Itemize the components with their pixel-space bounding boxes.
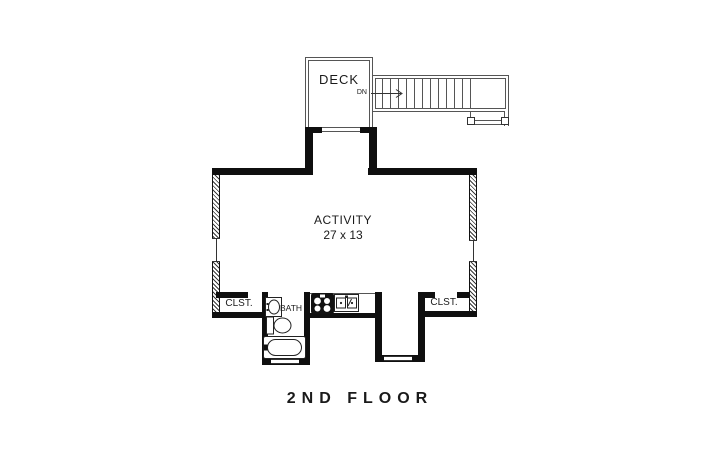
bathtub-icon bbox=[263, 336, 306, 359]
activity-dimensions: 27 x 13 bbox=[283, 228, 403, 242]
cooktop-icon bbox=[311, 293, 334, 314]
activity-north-wall-right bbox=[368, 168, 477, 175]
bath-window bbox=[271, 359, 299, 364]
activity-label: ACTIVITY bbox=[283, 213, 403, 227]
closet-right-label: CLST. bbox=[421, 297, 467, 308]
activity-north-wall-left bbox=[212, 168, 313, 175]
plan-title: 2ND FLOOR bbox=[250, 390, 470, 408]
floor-plan: DECK DN ACTIVITY 27 x 13 CLST. BATH bbox=[0, 0, 720, 460]
alcove-door-jamb-left bbox=[305, 127, 322, 133]
south-exterior-wall-right bbox=[425, 311, 477, 317]
stairwell-west-wall bbox=[375, 292, 382, 360]
closet-left-label: CLST. bbox=[216, 298, 262, 309]
south-exterior-wall-left bbox=[212, 312, 267, 318]
west-window bbox=[212, 238, 220, 262]
rail-post-right-icon bbox=[501, 117, 509, 125]
deck-sliding-door bbox=[322, 127, 360, 132]
east-window bbox=[469, 240, 477, 262]
alcove-door-jamb-right bbox=[360, 127, 377, 133]
rail-post-left-icon bbox=[467, 117, 475, 125]
kitchen-sink-icon bbox=[334, 294, 359, 312]
deck-down-label: DN bbox=[350, 89, 367, 96]
bath-label: BATH bbox=[280, 303, 302, 313]
dn-arrow-icon bbox=[368, 87, 406, 100]
toilet-icon bbox=[266, 315, 292, 336]
deck-label: DECK bbox=[305, 72, 373, 87]
stairwell-window bbox=[384, 356, 412, 361]
